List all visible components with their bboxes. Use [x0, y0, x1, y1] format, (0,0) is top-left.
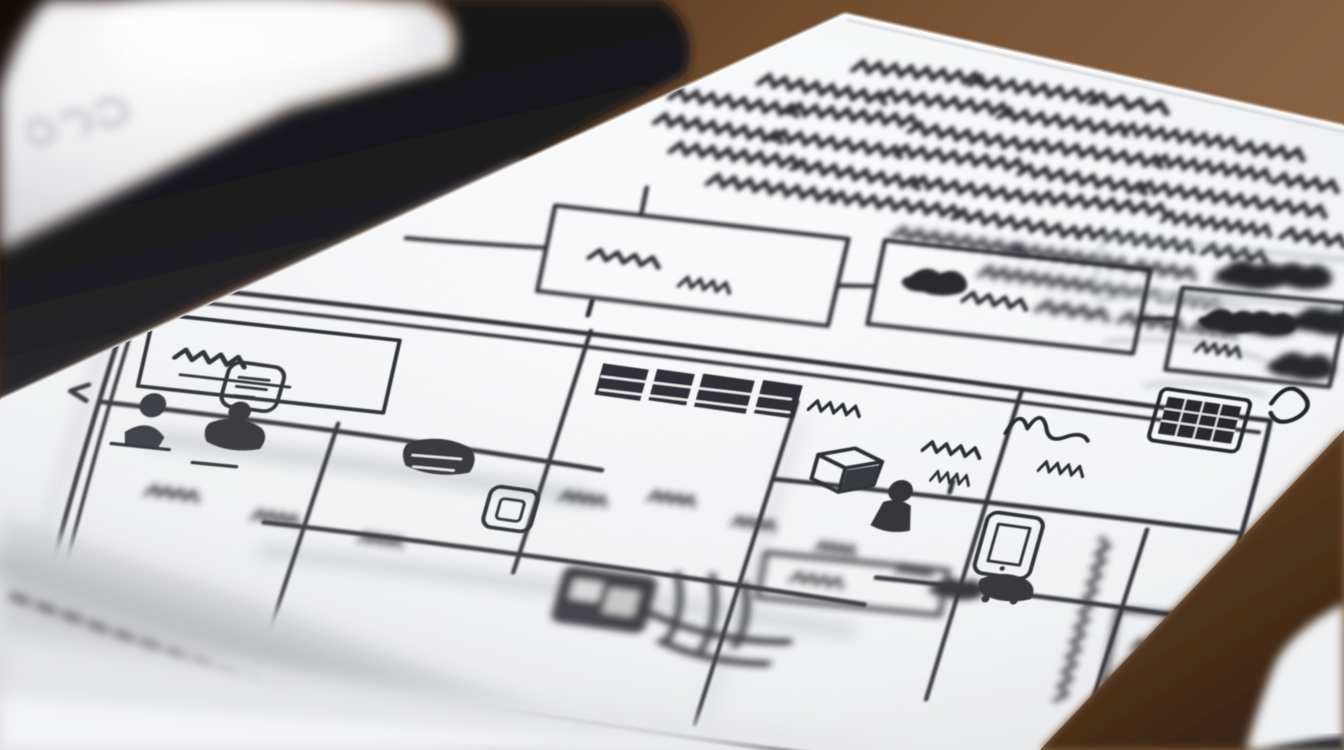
- desk-photo: Close-up photograph of a hand-drawn webs…: [0, 0, 1344, 750]
- photo-stage: Close-up photograph of a hand-drawn webs…: [0, 0, 1344, 750]
